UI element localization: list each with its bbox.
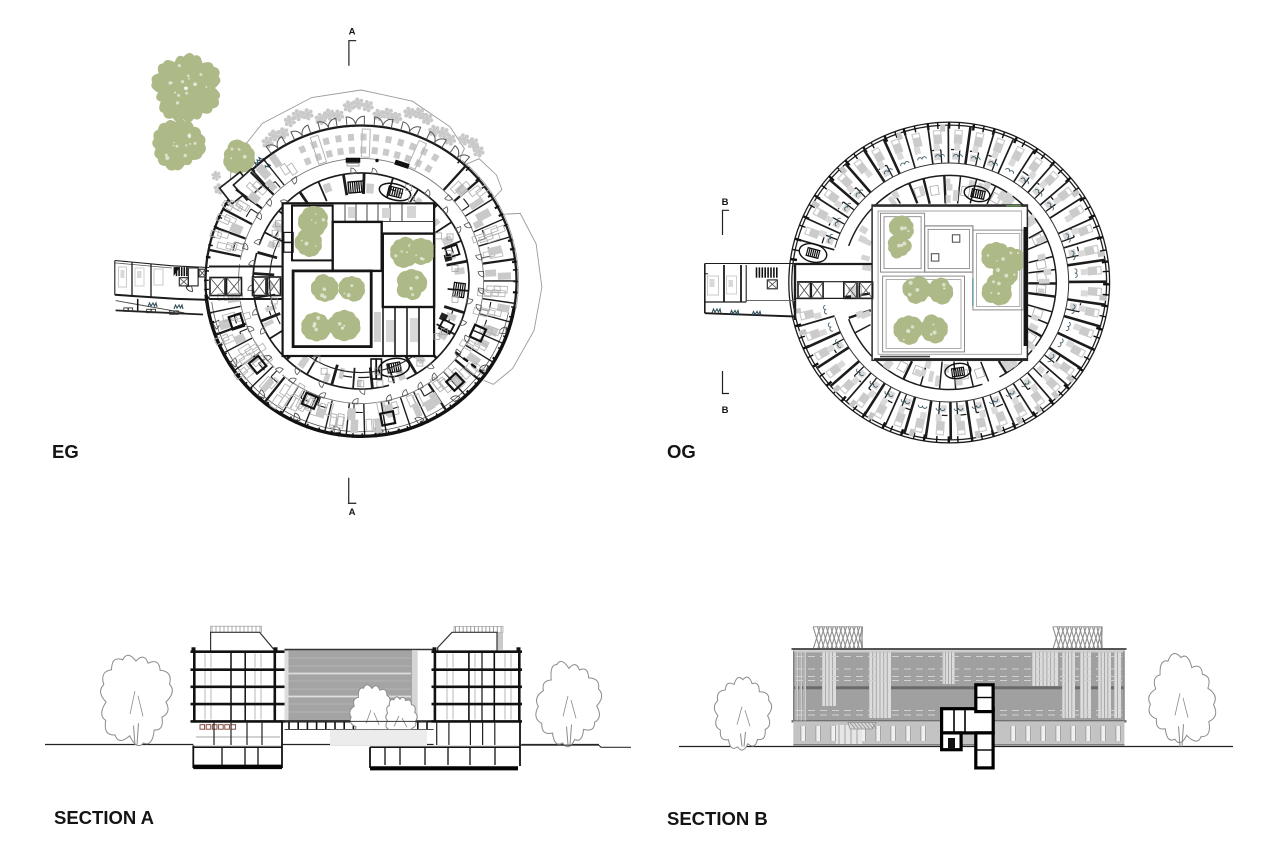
svg-text:SECTION A: SECTION A [54,807,154,828]
svg-text:A: A [349,507,356,518]
svg-text:B: B [722,405,729,416]
svg-text:EG: EG [52,441,79,462]
svg-text:B: B [722,197,729,208]
svg-text:OG: OG [667,441,696,462]
svg-text:SECTION B: SECTION B [667,808,768,829]
svg-text:A: A [349,27,356,38]
